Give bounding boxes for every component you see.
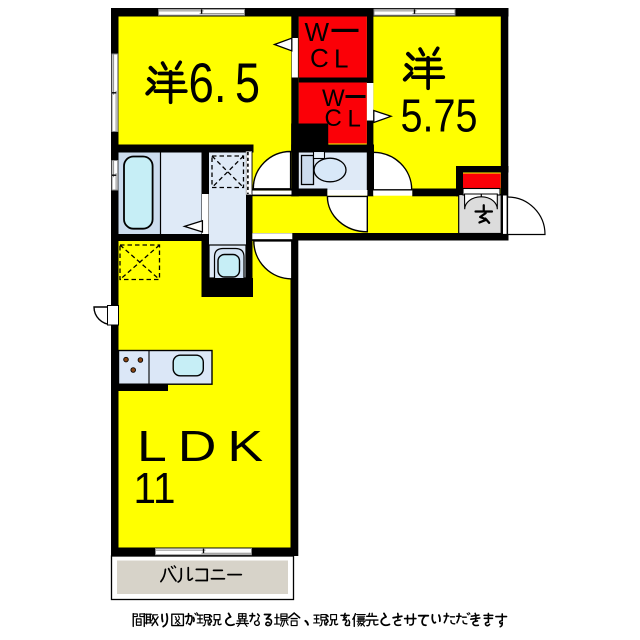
svg-text:6.: 6. <box>189 51 227 114</box>
svg-text:5.75: 5.75 <box>401 90 478 142</box>
svg-text:5: 5 <box>235 51 260 114</box>
svg-text:11: 11 <box>134 464 176 513</box>
svg-text:C: C <box>325 105 342 132</box>
svg-text:L: L <box>334 43 348 73</box>
svg-text:L: L <box>348 105 361 132</box>
svg-text:C: C <box>310 43 329 73</box>
